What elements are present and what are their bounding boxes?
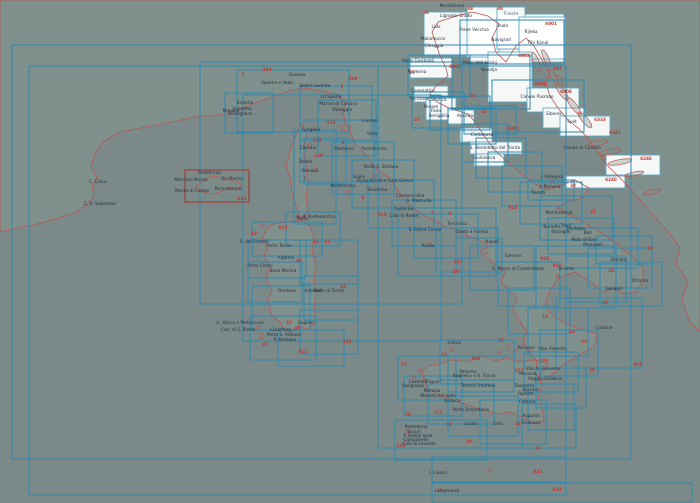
island [296,216,299,218]
plan-box[interactable] [488,52,532,102]
island [529,349,531,351]
island [406,430,410,433]
island [451,349,454,351]
island [602,156,606,160]
island [544,185,546,187]
nautical-chart-index-svg: MonfalconeLignano-GradoLidoMalamoccoChio… [0,0,700,503]
plan-box[interactable] [424,12,468,56]
island [507,346,509,348]
island [260,333,264,339]
chart-index-map: MonfalconeLignano-GradoLidoMalamoccoChio… [0,0,700,503]
island [499,351,502,353]
island [486,252,488,254]
island [347,191,350,194]
island [523,343,525,345]
island [313,127,315,129]
island [423,377,425,379]
island [413,377,416,379]
island [419,369,422,371]
island [438,489,443,491]
island [489,469,491,471]
island [302,215,304,217]
plan-box[interactable] [474,154,504,166]
island [515,349,517,351]
island [315,169,318,172]
island [309,144,312,149]
island [429,242,431,244]
